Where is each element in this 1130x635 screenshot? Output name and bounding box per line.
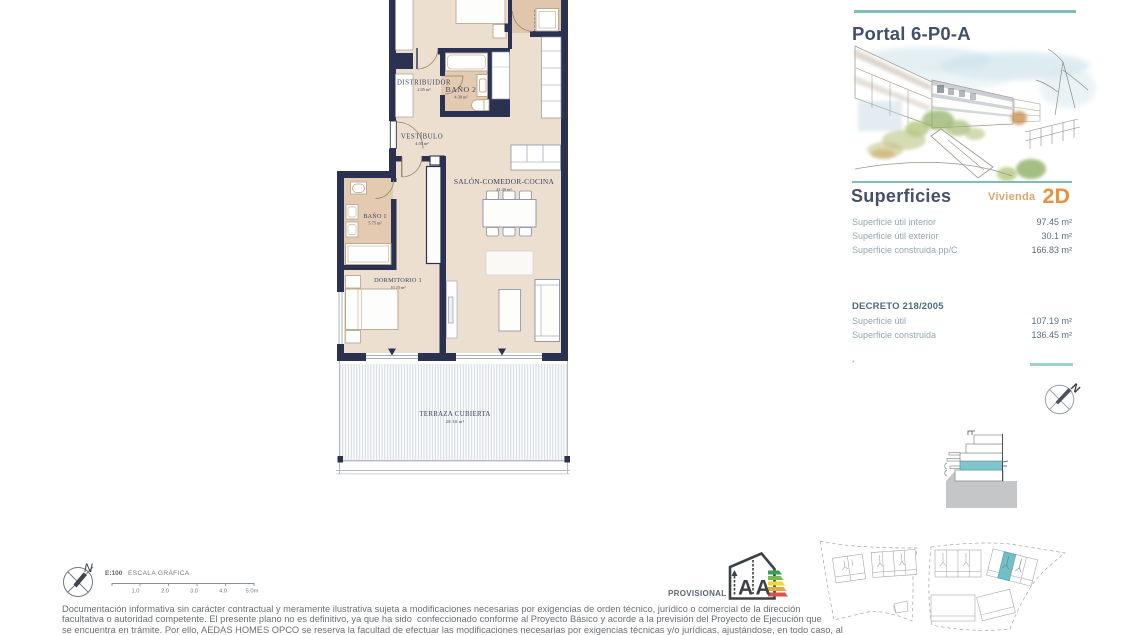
svg-text:4.05 m²: 4.05 m² [415, 141, 429, 146]
svg-text:4.0: 4.0 [219, 589, 227, 595]
svg-text:SALÓN-COMEDOR-COCINA: SALÓN-COMEDOR-COCINA [454, 176, 555, 186]
svg-text:2.0: 2.0 [161, 589, 169, 595]
svg-text:ESCALA GRÁFICA: ESCALA GRÁFICA [128, 568, 190, 577]
svg-text:2.05 m²: 2.05 m² [417, 87, 431, 92]
svg-text:N: N [84, 561, 93, 575]
svg-text:5.0m: 5.0m [246, 589, 259, 595]
svg-text:DORMITORIO 1: DORMITORIO 1 [374, 277, 422, 284]
svg-text:BAÑO 2: BAÑO 2 [446, 84, 477, 94]
svg-text:BAÑO 1: BAÑO 1 [363, 212, 386, 220]
svg-text:E:100: E:100 [105, 570, 123, 577]
svg-text:1.0: 1.0 [131, 589, 139, 595]
svg-text:4.30 m²: 4.30 m² [454, 95, 468, 100]
svg-text:5.75 m²: 5.75 m² [368, 221, 382, 226]
svg-text:N: N [1068, 381, 1082, 395]
svg-text:28.30 m²: 28.30 m² [446, 419, 465, 424]
svg-text:A: A [756, 577, 771, 600]
svg-text:3.0: 3.0 [190, 589, 198, 595]
svg-text:A: A [738, 577, 753, 600]
svg-text:DISTRIBUIDOR: DISTRIBUIDOR [397, 80, 451, 87]
svg-text:VESTÍBULO: VESTÍBULO [401, 133, 443, 141]
svg-text:TERRAZA CUBIERTA: TERRAZA CUBIERTA [419, 411, 490, 418]
